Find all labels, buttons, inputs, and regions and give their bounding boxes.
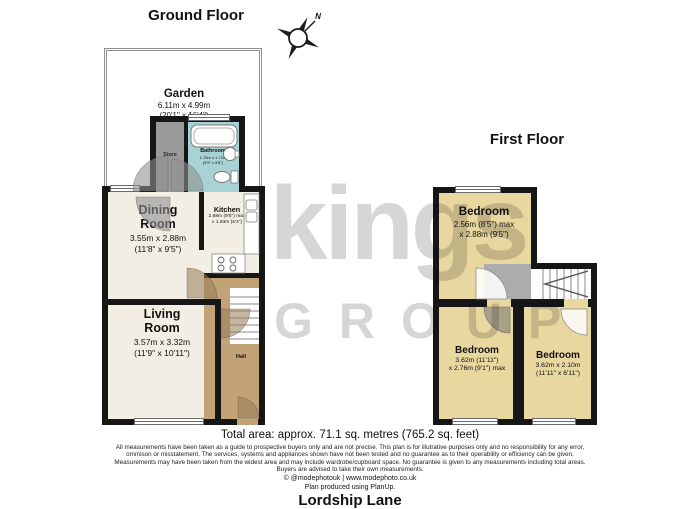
door-arc — [187, 268, 259, 418]
toilet-icon — [214, 171, 238, 183]
door-arc — [133, 156, 203, 231]
bathtub-icon — [191, 125, 237, 147]
floorplan-sheet: Ground Floor First Floor Garden 6.11m x … — [0, 0, 700, 509]
total-area-text: Total area: approx. 71.1 sq. metres (765… — [221, 429, 479, 441]
credit-text: © @modephotouk | www.modephoto.co.uk — [284, 475, 417, 483]
produced-text: Plan produced using PlanUp. — [305, 484, 396, 492]
disclaimer-line: Buyers are advised to take their own mea… — [277, 466, 424, 473]
sink-icon — [224, 148, 240, 161]
stairs-steps-first — [543, 269, 588, 299]
compass-north-label: N — [315, 12, 321, 21]
disclaimer-line: ommison or misstatement. The services, s… — [126, 451, 574, 458]
stove-icon — [212, 254, 245, 273]
kitchen-counter-icon — [244, 194, 259, 254]
address-title: Lordship Lane — [298, 492, 401, 509]
door-arc — [476, 268, 587, 335]
